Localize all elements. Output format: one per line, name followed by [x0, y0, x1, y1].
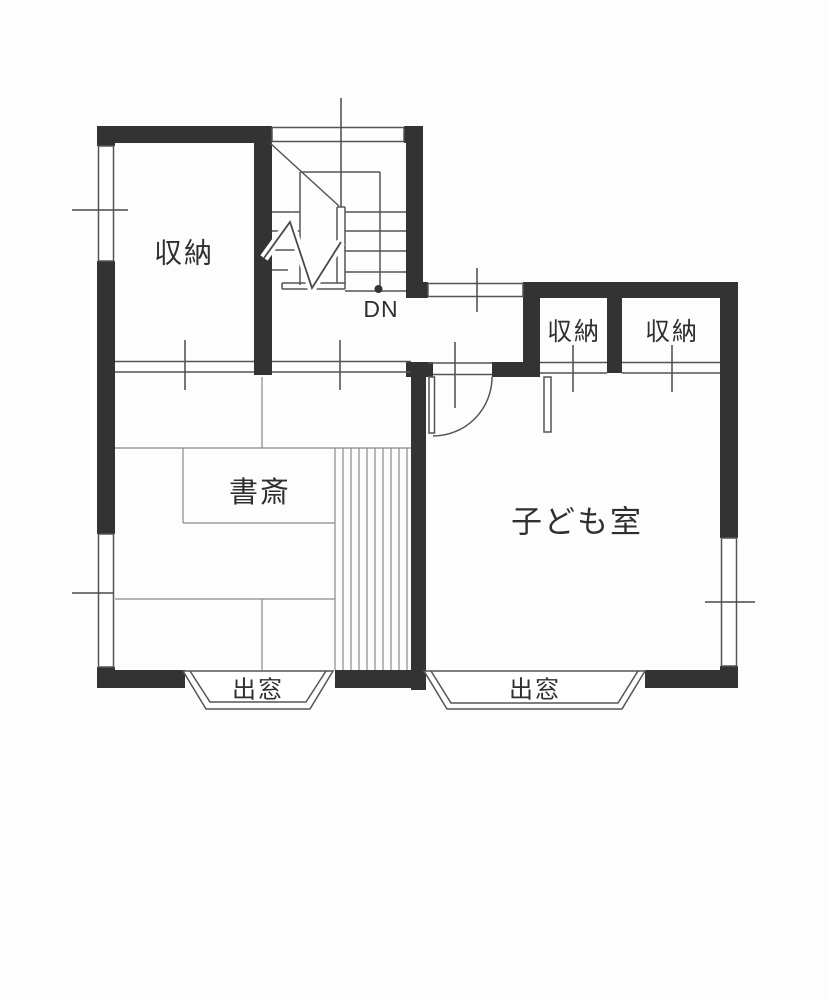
sliding-door-closet-right [622, 363, 720, 374]
room-label-closet-right: 収納 [645, 318, 699, 346]
floorplan-drawing: 収納 収納 収納 書斎 子ども室 出窓 出窓 DN [0, 0, 827, 1000]
wall-door-jamb-right [492, 362, 523, 377]
room-label-bay-window-left: 出窓 [232, 677, 284, 704]
floorplan-image: 収納 収納 収納 書斎 子ども室 出窓 出窓 DN [0, 0, 827, 1000]
wall-east-upper [720, 282, 738, 538]
wall-stair-east [406, 126, 423, 298]
door-side-panel [544, 377, 551, 432]
window-west-lower [99, 534, 114, 667]
stair-dn-dot [375, 285, 383, 293]
door-swing-arc [433, 377, 492, 436]
door-leaf [429, 377, 435, 433]
stair-treads-right [345, 212, 406, 291]
wall-west-top-corner [97, 126, 115, 146]
window-stair-north [272, 128, 404, 142]
stairs-dn-label: DN [363, 296, 398, 322]
room-label-bay-window-right: 出窓 [509, 677, 561, 704]
stair-diagonal [270, 143, 339, 206]
window-hall-north [428, 284, 523, 297]
wall-door-jamb-left [406, 362, 433, 377]
wall-south-middle [335, 670, 424, 688]
wall-top-left-segment [97, 126, 272, 143]
wall-closets-north [523, 282, 738, 298]
wall-closet-divider [607, 297, 622, 373]
board-floor-stripes [343, 448, 407, 670]
room-label-study: 書斎 [229, 476, 291, 509]
walls [97, 126, 738, 690]
room-label-storage-nw: 収納 [154, 238, 214, 269]
wall-closet-left-pillar [523, 282, 540, 377]
sliding-door-hall-study [272, 362, 411, 373]
stair-break-line-halo [264, 222, 341, 288]
wall-west-middle [97, 261, 115, 534]
room-label-closet-left: 収納 [547, 318, 601, 346]
wall-storage-stair-divider [254, 143, 272, 375]
staircase [264, 143, 406, 293]
room-label-children-room: 子ども室 [511, 505, 643, 540]
wall-children-west [411, 362, 426, 690]
wall-hall-north-left-piece [406, 282, 428, 298]
wall-south-right [645, 670, 738, 688]
wall-west-bottom-corner [97, 667, 115, 688]
window-west-upper [99, 146, 114, 261]
